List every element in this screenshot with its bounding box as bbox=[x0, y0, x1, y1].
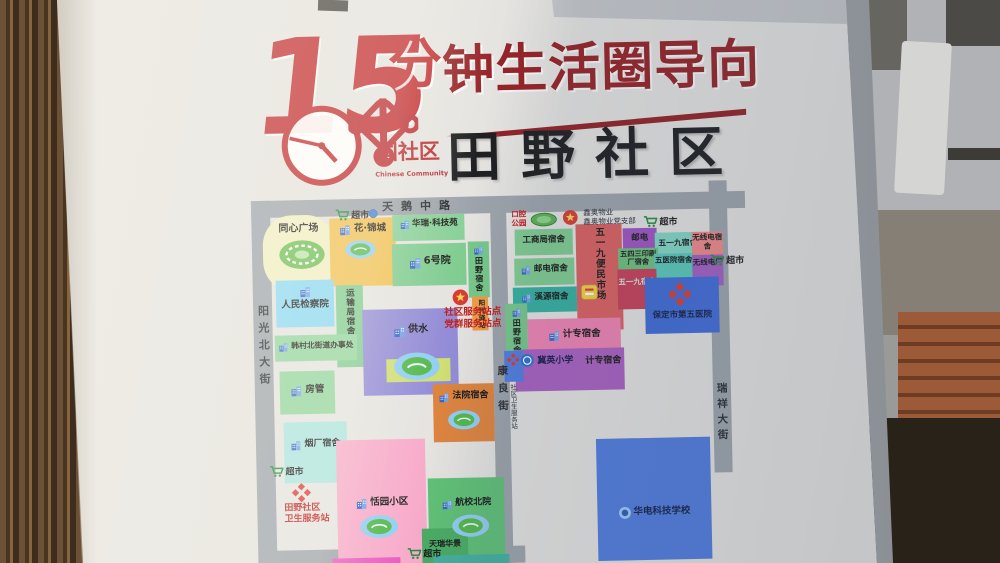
cart-icon bbox=[710, 252, 724, 266]
jiying-school-label: 冀英小学 bbox=[537, 355, 573, 367]
pond-icon bbox=[345, 240, 376, 260]
cross-icon bbox=[506, 353, 520, 367]
supermarket-e: 超市 bbox=[710, 252, 744, 267]
supermarket-nw-label: 超市 bbox=[351, 207, 369, 220]
wuyijiu-market: 五一九便民市场 bbox=[575, 223, 623, 330]
pond-hangxiao bbox=[451, 513, 489, 538]
peoples-procuratorate: 人民检察院 bbox=[276, 279, 335, 327]
cart-icon bbox=[407, 546, 421, 560]
park-oval bbox=[530, 212, 557, 228]
pond-tianyuan bbox=[359, 514, 398, 539]
property-caption: 鑫奥物业鑫奥物业党支部 bbox=[583, 207, 636, 226]
tianye-health-station-caption: 田野社区卫生服务站 bbox=[284, 503, 329, 526]
stadium-oval bbox=[278, 239, 327, 271]
market-badge bbox=[581, 284, 598, 300]
building-icon bbox=[408, 256, 422, 270]
tongxin-square-label: 同心广场 bbox=[278, 223, 318, 236]
pond-water-supply bbox=[393, 351, 441, 381]
fifth-hospital-dorm-label: 五医院宿舍 bbox=[655, 256, 693, 266]
huarui-tech-park: 华瑞·科技苑 bbox=[392, 214, 465, 242]
supermarket-s: 超市 bbox=[407, 545, 441, 560]
tianye-dorm-west-label: 田野宿舍 bbox=[474, 256, 484, 292]
photo-of-community-map-sign: 15 分 钟生活圈导向 国社区 Chinese Community 田野社区 bbox=[0, 0, 1000, 563]
clinic-point-cross bbox=[506, 353, 520, 367]
no6-yard-label: 6号院 bbox=[424, 255, 451, 267]
housing-authority-label: 房管 bbox=[305, 384, 324, 396]
pond-court bbox=[447, 409, 480, 430]
sign-board: 15 分 钟生活圈导向 国社区 Chinese Community 田野社区 bbox=[0, 0, 1000, 563]
transport-bureau-dorm-label: 运输局宿舍 bbox=[344, 288, 355, 336]
dental-park-caption: 口腔公园 bbox=[511, 209, 526, 228]
cart-icon bbox=[643, 214, 657, 228]
supermarket-s-label: 超市 bbox=[423, 546, 441, 559]
jizhuan-dorm-label: 计专宿舍 bbox=[563, 328, 601, 340]
pond-icon bbox=[359, 514, 398, 539]
service-station-caption: 社区服务站点党群服务站点 bbox=[444, 306, 501, 330]
hua-jincheng-label: 花·锦城 bbox=[354, 222, 386, 234]
court-dorm-label: 法院宿舍 bbox=[452, 390, 488, 401]
poi-dot bbox=[368, 209, 378, 219]
post-telecom-dorm: 邮电宿舍 bbox=[514, 257, 575, 285]
party-emblem-north bbox=[562, 209, 578, 225]
building-icon bbox=[290, 439, 302, 451]
supermarket-ne: 超市 bbox=[643, 213, 677, 228]
tianye-dorm-east: 田野宿舍 bbox=[505, 303, 528, 351]
housing-authority: 房管 bbox=[279, 370, 335, 414]
south-strip-teal bbox=[433, 554, 509, 563]
huarui-tech-park-label: 华瑞·科技苑 bbox=[412, 218, 458, 229]
huadian-tech-school: 华电科技学校 bbox=[596, 437, 713, 561]
building-icon bbox=[521, 264, 532, 275]
sign-content: 15 分 钟生活圈导向 国社区 Chinese Community 田野社区 bbox=[0, 0, 1000, 563]
supermarket-e-label: 超市 bbox=[726, 252, 744, 265]
post-telecom-label: 邮电 bbox=[631, 233, 648, 243]
background-object bbox=[318, 0, 348, 12]
building-icon bbox=[441, 498, 453, 510]
supermarket-ne-label: 超市 bbox=[659, 214, 677, 227]
cross-icon bbox=[667, 281, 694, 308]
wusansan-print-dorm-label: 五四三印刷厂宿舍 bbox=[618, 250, 658, 268]
ruixiang-street-label: 瑞祥大街 bbox=[715, 382, 729, 444]
tiane-middle-road-label: 天鹅中路 bbox=[382, 199, 458, 214]
cross-icon bbox=[291, 482, 312, 503]
radio-dorm-label: 无线电宿舍 bbox=[692, 233, 723, 251]
tianye-dorm-west: 田野宿舍 bbox=[468, 241, 490, 297]
building-icon bbox=[290, 384, 303, 397]
water-supply-label: 供水 bbox=[408, 324, 428, 336]
building-icon bbox=[548, 329, 561, 342]
party-emblem-west bbox=[452, 289, 469, 306]
circle-icon bbox=[618, 506, 631, 519]
building-icon bbox=[521, 292, 532, 303]
background-object bbox=[948, 148, 1000, 160]
post-telecom-dorm-label: 邮电宿舍 bbox=[534, 264, 568, 275]
building-icon bbox=[392, 324, 406, 338]
party-icon bbox=[562, 209, 578, 225]
baoding-fifth-hospital-label: 保定市第五医院 bbox=[652, 310, 712, 321]
xiyuan-dorm-label: 溪源宿舍 bbox=[534, 292, 568, 303]
cart-icon bbox=[335, 207, 349, 221]
background-object bbox=[946, 0, 1000, 46]
building-icon bbox=[438, 391, 450, 403]
building-icon bbox=[339, 223, 352, 236]
supermarket-w: 超市 bbox=[269, 463, 303, 478]
pond-huajincheng bbox=[345, 240, 376, 260]
tianyuan-community: 恬园小区 bbox=[336, 439, 428, 563]
gongshang-bureau-dorm: 工商局宿舍 bbox=[515, 228, 574, 255]
park-icon bbox=[530, 212, 557, 228]
peoples-procuratorate-label: 人民检察院 bbox=[281, 299, 329, 311]
cart-icon bbox=[269, 464, 283, 478]
building-icon bbox=[278, 341, 289, 352]
yangguang-north-street-label: 阳光北大街 bbox=[256, 305, 271, 390]
no6-yard: 6号院 bbox=[392, 243, 467, 287]
building-icon bbox=[298, 285, 311, 298]
community-map: 同心广场花·锦城华瑞·科技苑6号院田野宿舍人民检察院运输局宿舍供水韩村北街道办事… bbox=[0, 0, 1000, 563]
huadian-tech-school-label: 华电科技学校 bbox=[633, 505, 690, 517]
background-object bbox=[845, 0, 907, 70]
supermarket-w-label: 超市 bbox=[285, 464, 303, 477]
stadium-icon bbox=[278, 239, 327, 271]
hancun-north-street-office-label: 韩村北街道办事处 bbox=[291, 340, 354, 350]
building-icon bbox=[399, 219, 410, 230]
dot-icon bbox=[368, 209, 378, 219]
tianyuan-community-label: 恬园小区 bbox=[370, 496, 408, 508]
building-icon bbox=[511, 307, 522, 318]
jizhuan-dorm-label-2: 计专宿舍 bbox=[585, 355, 621, 367]
background-wood bbox=[898, 312, 1000, 430]
health-station-cross bbox=[291, 482, 312, 503]
clinic-point-caption: 社区卫生服务站 bbox=[508, 384, 517, 430]
building-icon bbox=[473, 244, 484, 255]
fifth-hospital-logo bbox=[667, 281, 694, 308]
hangxiao-north-yard-label: 航校北院 bbox=[455, 497, 491, 508]
school-icon bbox=[520, 353, 534, 367]
party-icon bbox=[452, 289, 469, 306]
supermarket-nw: 超市 bbox=[335, 207, 369, 222]
hancun-north-street-office: 韩村北街道办事处 bbox=[275, 334, 358, 362]
south-strip-magenta bbox=[332, 557, 400, 563]
pond-icon bbox=[393, 351, 441, 381]
background-panel bbox=[894, 41, 952, 195]
pond-icon bbox=[447, 409, 480, 430]
jiying-school-icon bbox=[520, 353, 534, 367]
gongshang-bureau-dorm-label: 工商局宿舍 bbox=[522, 235, 565, 246]
pond-icon bbox=[451, 513, 489, 538]
badge-icon bbox=[581, 284, 598, 300]
building-icon bbox=[355, 497, 368, 510]
